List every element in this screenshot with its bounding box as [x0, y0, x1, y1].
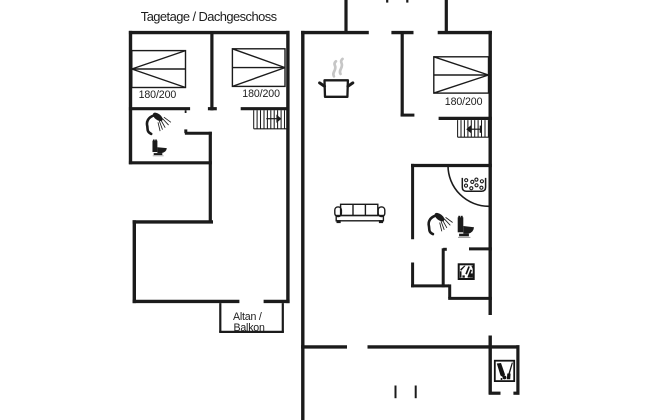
svg-text:Tagetage / Dachgeschoss: Tagetage / Dachgeschoss [141, 9, 277, 24]
svg-text:180/200: 180/200 [139, 89, 177, 101]
svg-text:Balkon: Balkon [234, 322, 265, 334]
svg-text:180/200: 180/200 [242, 88, 280, 100]
svg-text:180/200: 180/200 [445, 96, 483, 108]
